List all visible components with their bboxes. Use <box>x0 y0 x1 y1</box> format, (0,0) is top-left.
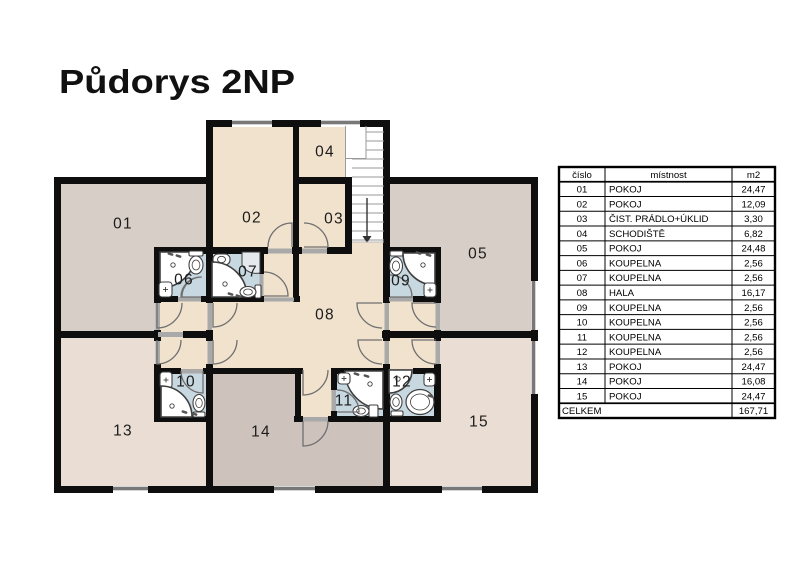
svg-text:13: 13 <box>113 423 133 440</box>
svg-text:KOUPELNA: KOUPELNA <box>609 273 662 284</box>
svg-text:09: 09 <box>577 303 588 314</box>
svg-text:10: 10 <box>577 318 588 329</box>
svg-text:05: 05 <box>468 246 488 263</box>
svg-text:POKOJ: POKOJ <box>609 244 642 255</box>
svg-text:POKOJ: POKOJ <box>609 362 642 373</box>
svg-text:HALA: HALA <box>609 288 635 299</box>
svg-text:03: 03 <box>324 211 344 228</box>
svg-text:2,56: 2,56 <box>744 347 763 358</box>
svg-text:SCHODIŠTĚ: SCHODIŠTĚ <box>609 229 665 240</box>
svg-text:POKOJ: POKOJ <box>609 391 642 402</box>
svg-text:15: 15 <box>469 414 489 431</box>
svg-text:KOUPELNA: KOUPELNA <box>609 332 662 343</box>
svg-text:CELKEM: CELKEM <box>562 406 601 417</box>
svg-text:16,08: 16,08 <box>741 377 765 388</box>
svg-text:05: 05 <box>577 244 588 255</box>
svg-text:KOUPELNA: KOUPELNA <box>609 318 662 329</box>
svg-text:03: 03 <box>577 214 588 225</box>
svg-text:14: 14 <box>577 377 588 388</box>
svg-text:01: 01 <box>577 185 588 196</box>
svg-text:07: 07 <box>238 264 258 281</box>
svg-text:08: 08 <box>577 288 588 299</box>
svg-text:15: 15 <box>577 391 588 402</box>
svg-text:24,47: 24,47 <box>741 391 765 402</box>
svg-text:místnost: místnost <box>650 170 687 181</box>
svg-text:2,56: 2,56 <box>744 318 763 329</box>
svg-text:2,56: 2,56 <box>744 332 763 343</box>
svg-text:14: 14 <box>251 424 271 441</box>
svg-text:POKOJ: POKOJ <box>609 377 642 388</box>
svg-text:2,56: 2,56 <box>744 303 763 314</box>
svg-text:ČIST. PRÁDLO+ÚKLID: ČIST. PRÁDLO+ÚKLID <box>609 214 709 225</box>
svg-text:12,09: 12,09 <box>741 199 765 210</box>
svg-text:3,30: 3,30 <box>744 214 763 225</box>
svg-text:2,56: 2,56 <box>744 259 763 270</box>
svg-text:POKOJ: POKOJ <box>609 185 642 196</box>
svg-text:07: 07 <box>577 273 588 284</box>
svg-text:KOUPELNA: KOUPELNA <box>609 259 662 270</box>
svg-text:11: 11 <box>335 393 354 410</box>
svg-text:24,48: 24,48 <box>741 244 765 255</box>
svg-text:m2: m2 <box>747 170 760 181</box>
svg-text:10: 10 <box>176 374 196 391</box>
svg-text:09: 09 <box>391 273 411 290</box>
svg-text:11: 11 <box>577 332 587 343</box>
svg-text:KOUPELNA: KOUPELNA <box>609 303 662 314</box>
svg-text:02: 02 <box>242 210 262 227</box>
svg-text:12: 12 <box>392 374 412 391</box>
svg-text:6,82: 6,82 <box>744 229 763 240</box>
svg-text:POKOJ: POKOJ <box>609 199 642 210</box>
svg-text:06: 06 <box>577 259 588 270</box>
svg-text:167,71: 167,71 <box>739 406 768 417</box>
svg-text:08: 08 <box>315 307 335 324</box>
svg-text:01: 01 <box>113 216 133 233</box>
svg-text:16,17: 16,17 <box>741 288 765 299</box>
svg-text:04: 04 <box>577 229 588 240</box>
svg-text:13: 13 <box>577 362 588 373</box>
svg-text:KOUPELNA: KOUPELNA <box>609 347 662 358</box>
svg-text:Půdorys 2NP: Půdorys 2NP <box>59 64 295 101</box>
svg-text:02: 02 <box>577 199 588 210</box>
svg-text:04: 04 <box>315 144 335 161</box>
svg-text:číslo: číslo <box>572 170 592 181</box>
svg-text:12: 12 <box>577 347 588 358</box>
svg-text:06: 06 <box>174 272 194 289</box>
svg-text:24,47: 24,47 <box>741 362 765 373</box>
svg-text:24,47: 24,47 <box>741 185 765 196</box>
svg-text:2,56: 2,56 <box>744 273 763 284</box>
